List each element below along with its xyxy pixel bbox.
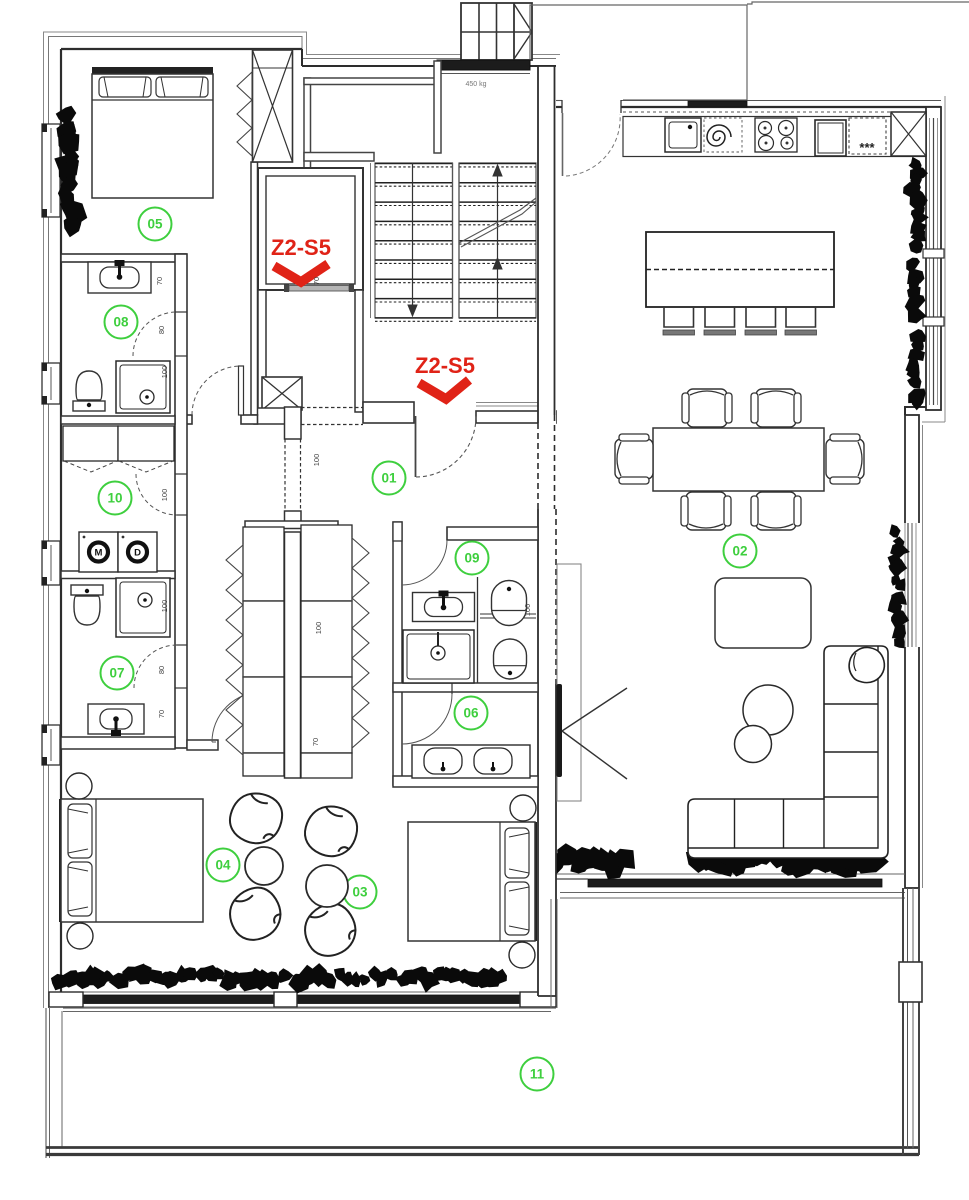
- svg-text:06: 06: [463, 706, 479, 721]
- svg-text:100: 100: [160, 489, 169, 502]
- svg-text:08: 08: [113, 315, 129, 330]
- svg-text:Z2-S5: Z2-S5: [415, 353, 475, 378]
- svg-text:09: 09: [464, 551, 479, 566]
- svg-text:01: 01: [381, 471, 397, 486]
- svg-text:11: 11: [530, 1067, 545, 1082]
- svg-text:100: 100: [312, 454, 321, 467]
- svg-text:70: 70: [157, 710, 166, 718]
- svg-text:450 kg: 450 kg: [465, 81, 486, 88]
- svg-text:***: ***: [859, 140, 875, 155]
- svg-text:04: 04: [215, 858, 231, 873]
- svg-text:10: 10: [107, 491, 122, 506]
- svg-text:70: 70: [311, 738, 320, 746]
- svg-text:02: 02: [732, 544, 747, 559]
- svg-text:D: D: [134, 548, 141, 559]
- svg-text:70: 70: [155, 277, 164, 285]
- svg-text:Z2-S5: Z2-S5: [271, 235, 331, 260]
- svg-text:07: 07: [109, 666, 124, 681]
- svg-text:100: 100: [523, 604, 532, 617]
- svg-text:M: M: [95, 548, 103, 559]
- svg-text:05: 05: [147, 217, 163, 232]
- svg-text:03: 03: [352, 885, 368, 900]
- svg-text:100: 100: [314, 622, 323, 635]
- svg-text:70: 70: [312, 277, 321, 285]
- svg-text:80: 80: [157, 666, 166, 674]
- svg-text:80: 80: [157, 326, 166, 334]
- svg-text:100: 100: [160, 600, 169, 613]
- svg-text:100: 100: [160, 366, 169, 379]
